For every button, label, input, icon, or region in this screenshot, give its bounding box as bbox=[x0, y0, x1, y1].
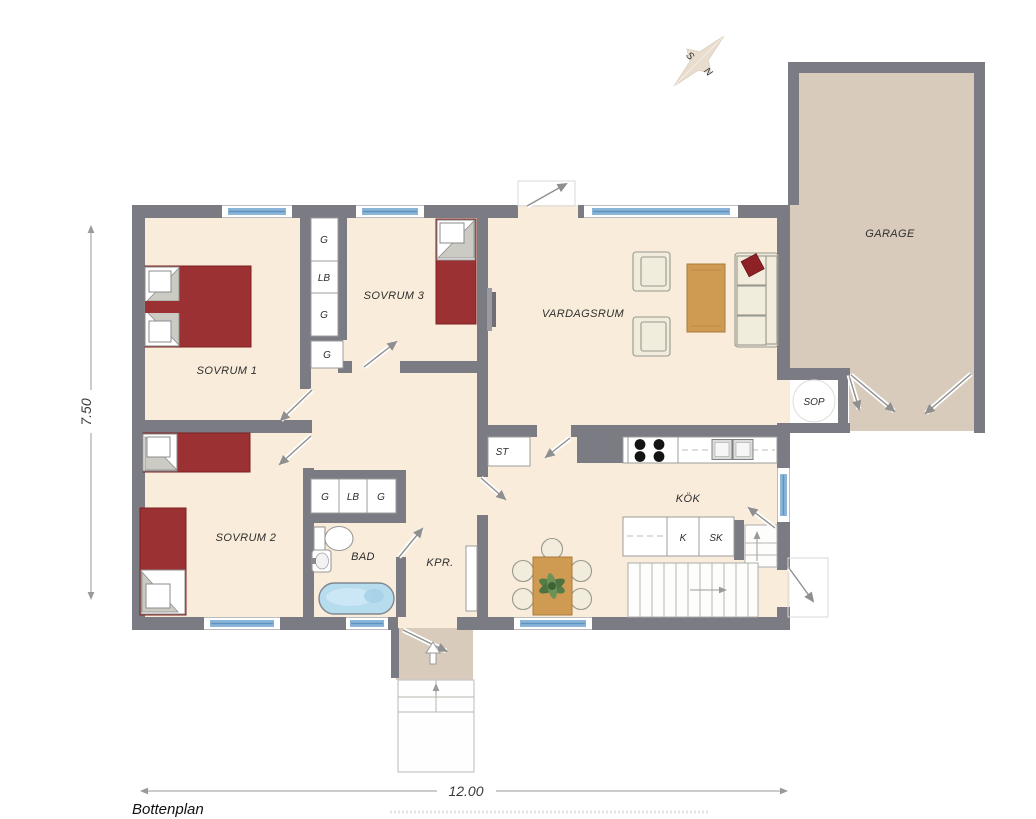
coffee-table bbox=[687, 264, 725, 332]
closet-label: G bbox=[323, 350, 331, 361]
waste-label: SOP bbox=[803, 397, 824, 408]
window bbox=[346, 618, 388, 630]
closet-label: G bbox=[377, 492, 385, 503]
room-label-bedroom3: SOVRUM 3 bbox=[364, 290, 425, 302]
closet-label: LB bbox=[318, 273, 331, 284]
hall-cabinet bbox=[466, 546, 477, 611]
entrance-steps bbox=[398, 680, 474, 772]
dimension-depth: 7.50 bbox=[78, 226, 94, 599]
kitchen-counter-top bbox=[623, 437, 777, 463]
toilet-icon bbox=[314, 527, 353, 552]
tv-icon bbox=[487, 288, 496, 331]
room-label-kitchen: KÖK bbox=[676, 493, 701, 505]
window bbox=[778, 468, 790, 522]
window bbox=[356, 206, 424, 218]
hall-closet: G bbox=[311, 341, 343, 368]
kitchen-counter-low: K SK bbox=[623, 517, 734, 556]
room-label-bath: BAD bbox=[351, 551, 375, 563]
single-bed bbox=[143, 433, 250, 472]
waste-bin: SOP bbox=[793, 380, 835, 422]
armchair bbox=[633, 252, 670, 291]
floorplan-drawing: G LB G G G LB G ST bbox=[0, 0, 1036, 819]
sink-icon bbox=[712, 440, 753, 460]
armchair bbox=[633, 317, 670, 356]
closet-label: ST bbox=[496, 447, 510, 458]
room-label-bedroom2: SOVRUM 2 bbox=[216, 532, 277, 544]
room-label-garage: GARAGE bbox=[865, 228, 915, 240]
double-bed bbox=[145, 266, 251, 347]
bathtub-icon bbox=[319, 583, 394, 614]
door-swing-area bbox=[788, 558, 828, 617]
window bbox=[222, 206, 292, 218]
window bbox=[204, 618, 280, 630]
closet-label: G bbox=[320, 310, 328, 321]
dimension-depth-label: 7.50 bbox=[78, 398, 94, 425]
sink-icon bbox=[312, 550, 331, 572]
closet-label: G bbox=[320, 235, 328, 246]
cleaning-closet: ST bbox=[488, 437, 530, 466]
window bbox=[514, 618, 592, 630]
plan-title: Bottenplan bbox=[132, 801, 204, 818]
closet-label: G bbox=[321, 492, 329, 503]
closet-column: G LB G bbox=[311, 218, 338, 336]
closet-label: LB bbox=[347, 492, 360, 503]
dimension-width-label: 12.00 bbox=[448, 783, 483, 799]
bath-closet-row: G LB G bbox=[311, 479, 396, 513]
compass-rose: S N bbox=[662, 24, 737, 99]
window bbox=[584, 206, 738, 218]
single-bed bbox=[436, 219, 476, 324]
floorplan-page: G LB G G G LB G ST bbox=[0, 0, 1036, 819]
room-label-hall: KPR. bbox=[426, 557, 453, 569]
single-bed bbox=[140, 508, 186, 615]
door-swing bbox=[789, 568, 813, 601]
dimension-width: 12.00 bbox=[141, 783, 787, 799]
room-label-living: VARDAGSRUM bbox=[542, 308, 625, 320]
sofa bbox=[735, 253, 778, 347]
cabinet-label: SK bbox=[709, 533, 724, 544]
room-label-bedroom1: SOVRUM 1 bbox=[197, 365, 258, 377]
door-swing bbox=[527, 184, 566, 206]
